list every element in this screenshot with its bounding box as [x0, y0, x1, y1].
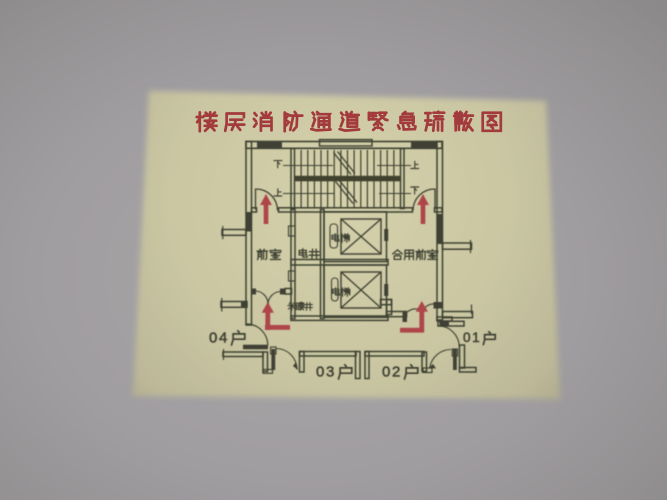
svg-text:04: 04 [209, 329, 229, 346]
svg-text:01: 01 [463, 330, 481, 345]
svg-text:03: 03 [316, 363, 336, 380]
svg-text:02: 02 [382, 363, 402, 380]
